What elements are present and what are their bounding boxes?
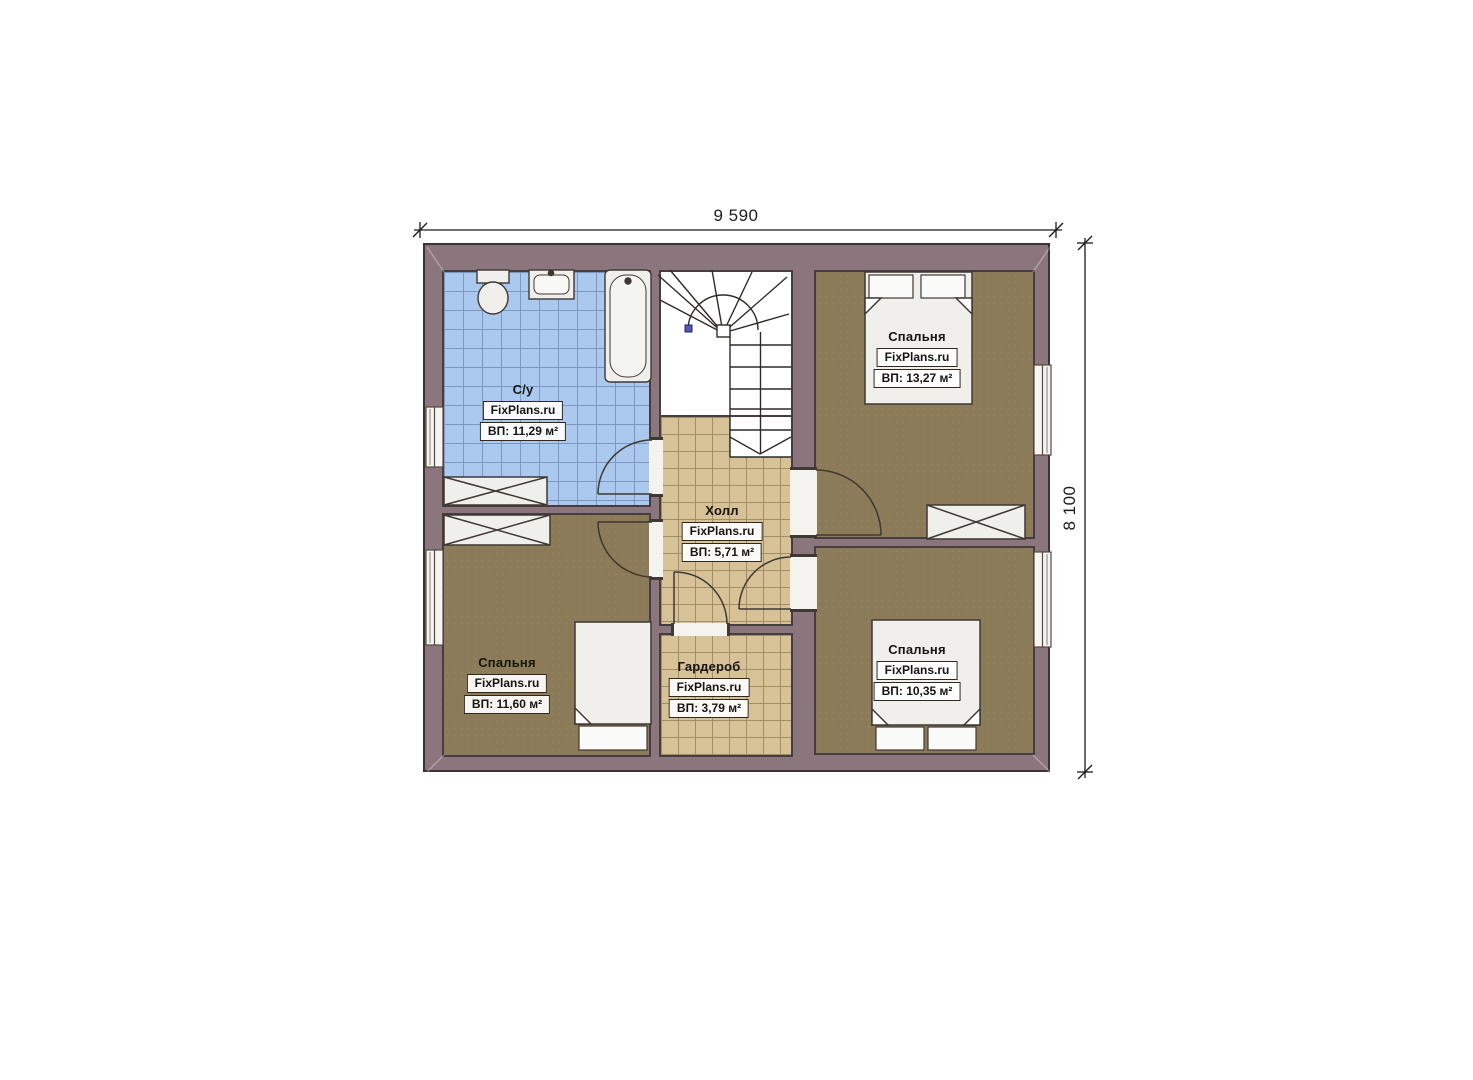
brand-badge: FixPlans.ru <box>877 661 958 680</box>
brand-badge: FixPlans.ru <box>682 522 763 541</box>
room-name: Холл <box>705 503 738 518</box>
brand-badge: FixPlans.ru <box>467 674 548 693</box>
room-area: ВП: 11,29 м² <box>480 422 566 441</box>
floor-plan-page: { "brand": "FixPlans.ru", "dimensions": … <box>0 0 1473 1080</box>
room-area: ВП: 11,60 м² <box>464 695 550 714</box>
room-area: ВП: 10,35 м² <box>874 682 961 701</box>
room-name: Спальня <box>478 655 536 670</box>
room-label-bedroom-top-right: Спальня FixPlans.ru ВП: 13,27 м² <box>874 329 961 388</box>
room-label-bedroom-bottom-right: Спальня FixPlans.ru ВП: 10,35 м² <box>874 642 961 701</box>
room-name: Гардероб <box>677 659 740 674</box>
room-label-wardrobe: Гардероб FixPlans.ru ВП: 3,79 м² <box>669 659 750 718</box>
room-label-bathroom: С/у FixPlans.ru ВП: 11,29 м² <box>480 382 566 441</box>
door-opening-bedroom-top-right <box>790 467 817 538</box>
door-opening-bedroom-bottom-right <box>790 554 817 612</box>
room-area: ВП: 13,27 м² <box>874 369 961 388</box>
brand-badge: FixPlans.ru <box>877 348 958 367</box>
room-label-hall: Холл FixPlans.ru ВП: 5,71 м² <box>682 503 763 562</box>
window-left-bathroom <box>426 407 443 467</box>
dimension-top-label: 9 590 <box>690 206 782 226</box>
room-area: ВП: 5,71 м² <box>682 543 762 562</box>
brand-badge: FixPlans.ru <box>483 401 564 420</box>
floor-plan: С/у FixPlans.ru ВП: 11,29 м² Спальня Fix… <box>423 243 1050 772</box>
window-right-bedroom-bottom <box>1034 552 1051 647</box>
stairwell-floor <box>659 270 793 419</box>
room-name: С/у <box>513 382 534 397</box>
bedroom-top-right-floor <box>814 270 1035 539</box>
window-right-bedroom-top <box>1034 365 1051 455</box>
room-label-bedroom-left: Спальня FixPlans.ru ВП: 11,60 м² <box>464 655 550 714</box>
window-left-bedroom <box>426 550 443 645</box>
room-name: Спальня <box>888 642 946 657</box>
brand-badge: FixPlans.ru <box>669 678 750 697</box>
dimension-right-label: 8 100 <box>1060 462 1080 554</box>
room-area: ВП: 3,79 м² <box>669 699 749 718</box>
bedroom-left-floor <box>442 513 651 757</box>
room-name: Спальня <box>888 329 946 344</box>
